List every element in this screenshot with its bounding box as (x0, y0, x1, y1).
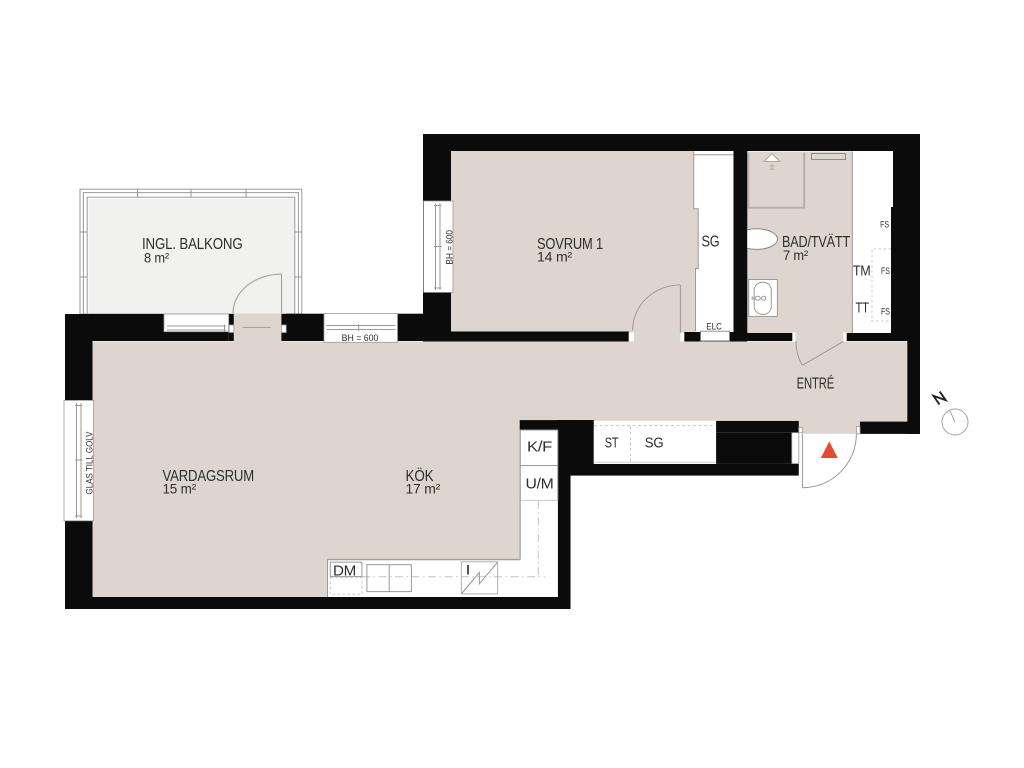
svg-text:ELC: ELC (706, 322, 722, 332)
svg-text:BH = 600: BH = 600 (444, 230, 455, 265)
svg-text:FS: FS (880, 219, 889, 230)
svg-text:15 m²: 15 m² (163, 481, 197, 497)
svg-text:TT: TT (856, 300, 869, 317)
svg-text:GLAS TILL GOLV: GLAS TILL GOLV (85, 431, 96, 495)
svg-text:SG: SG (702, 234, 720, 251)
svg-text:K/F: K/F (527, 439, 552, 456)
svg-text:U/M: U/M (526, 476, 554, 493)
svg-text:TM: TM (853, 263, 871, 280)
svg-text:ST: ST (605, 435, 619, 452)
svg-text:FS: FS (881, 266, 890, 277)
svg-text:8 m²: 8 m² (144, 250, 169, 266)
svg-text:SG: SG (645, 435, 664, 452)
svg-text:DM: DM (333, 563, 356, 580)
svg-text:17 m²: 17 m² (406, 481, 441, 497)
svg-text:BH = 600: BH = 600 (342, 333, 379, 344)
svg-text:ENTRÉ: ENTRÉ (797, 374, 835, 393)
svg-text:FS: FS (881, 306, 890, 317)
svg-text:14 m²: 14 m² (537, 249, 573, 265)
svg-text:7 m²: 7 m² (783, 247, 808, 263)
